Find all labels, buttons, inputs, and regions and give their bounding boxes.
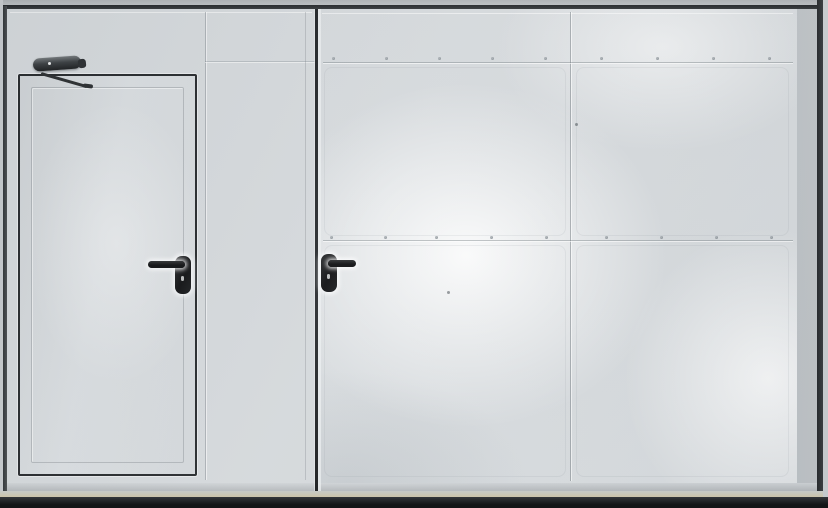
rivet [768,57,771,60]
left-gate-leaf [7,9,315,483]
rivet [712,57,715,60]
left-leaf-vertical-seam [205,12,206,480]
rivet [438,57,441,60]
right-leaf-panel-lower-left [324,245,566,477]
right-leaf-horizontal-seam-upper [323,62,793,63]
rivet [491,57,494,60]
leaf-bottom-edge [7,483,817,491]
surface-speck [447,291,450,294]
industrial-doors-photo [0,0,828,508]
right-leaf-vertical-seam [570,12,571,481]
left-leaf-horizontal-seam [205,61,315,62]
surface-speck [575,123,578,126]
wicket-door-keyhole [181,276,184,281]
frame-right-band [797,9,817,483]
door-closer-end-cap [78,59,87,69]
right-leaf-horizontal-seam-lower [323,240,793,241]
rivet [605,236,608,239]
rivet [544,57,547,60]
right-leaf-handle-lever [328,260,356,267]
rivet [600,57,603,60]
rivet [490,236,493,239]
floor-dark-strip [0,497,828,508]
right-leaf-panel-upper-left [324,67,566,236]
rivet [715,236,718,239]
wicket-door-inner-panel [31,87,184,463]
frame-right-sliver [823,0,828,508]
rivet [656,57,659,60]
right-leaf-panel-upper-right [576,67,789,236]
rivet [660,236,663,239]
rivet [330,236,333,239]
rivet [435,236,438,239]
right-gate-leaf [318,9,797,483]
right-leaf-top-highlight [322,13,793,14]
wicket-door-handle-lever [148,261,185,268]
rivet [385,57,388,60]
right-leaf-panel-lower-right [576,245,789,477]
rivet [332,57,335,60]
left-leaf-top-highlight [10,12,312,13]
left-leaf-edge-line [305,12,306,480]
rivet [545,236,548,239]
rivet [770,236,773,239]
rivet [384,236,387,239]
leaf-gap-line [315,9,318,493]
wicket-door [18,74,197,476]
right-leaf-keyhole [327,274,330,279]
door-closer-highlight [48,62,51,65]
